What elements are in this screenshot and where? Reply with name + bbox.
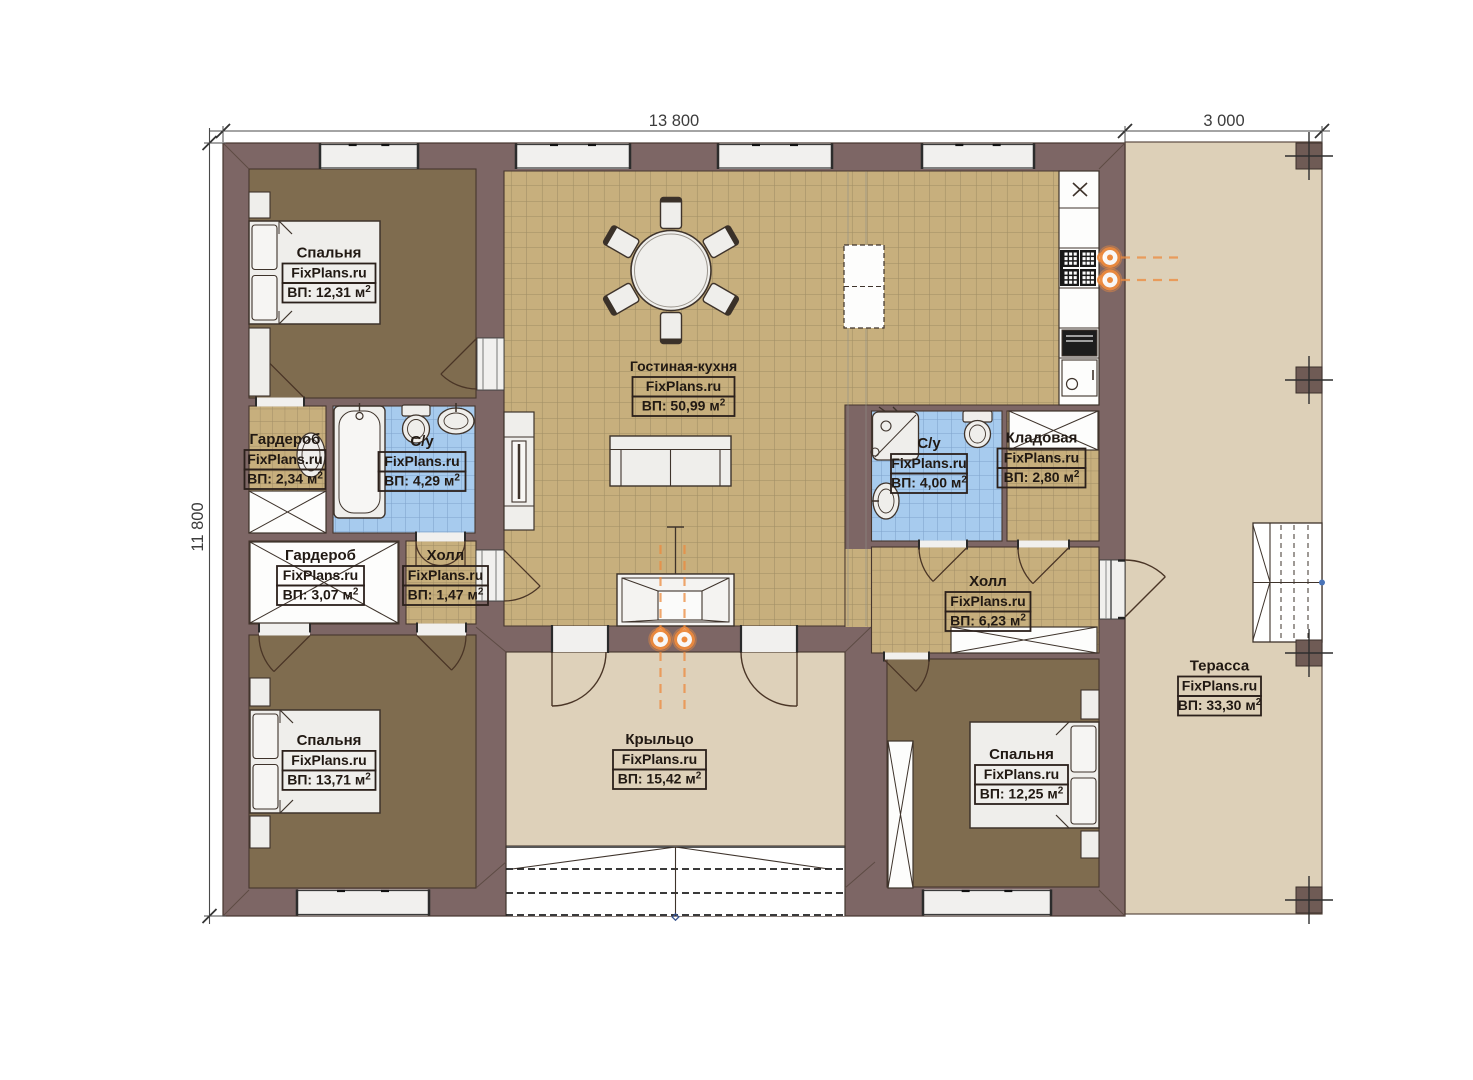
svg-text:FixPlans.ru: FixPlans.ru bbox=[1182, 678, 1257, 694]
svg-text:ВП: 4,29 м2: ВП: 4,29 м2 bbox=[384, 473, 460, 489]
svg-text:Гостиная-кухня: Гостиная-кухня bbox=[630, 358, 737, 374]
svg-text:Крыльцо: Крыльцо bbox=[625, 731, 693, 748]
svg-text:13 800: 13 800 bbox=[649, 112, 699, 130]
svg-text:FixPlans.ru: FixPlans.ru bbox=[950, 593, 1025, 609]
svg-text:FixPlans.ru: FixPlans.ru bbox=[1004, 450, 1079, 466]
svg-text:ВП: 6,23 м2: ВП: 6,23 м2 bbox=[950, 613, 1026, 629]
svg-text:Холл: Холл bbox=[969, 573, 1007, 590]
svg-text:Спальня: Спальня bbox=[989, 746, 1054, 763]
svg-text:Спальня: Спальня bbox=[297, 245, 362, 262]
svg-text:С/у: С/у bbox=[917, 435, 941, 452]
svg-text:ВП: 15,42 м2: ВП: 15,42 м2 bbox=[618, 771, 702, 787]
svg-text:FixPlans.ru: FixPlans.ru bbox=[984, 766, 1059, 782]
svg-text:FixPlans.ru: FixPlans.ru bbox=[622, 751, 697, 767]
svg-text:ВП: 33,30 м2: ВП: 33,30 м2 bbox=[1178, 697, 1262, 713]
svg-text:ВП: 1,47 м2: ВП: 1,47 м2 bbox=[408, 587, 484, 603]
svg-text:ВП: 2,80 м2: ВП: 2,80 м2 bbox=[1004, 469, 1080, 485]
svg-text:ВП: 13,71 м2: ВП: 13,71 м2 bbox=[287, 772, 371, 788]
svg-text:FixPlans.ru: FixPlans.ru bbox=[408, 567, 483, 583]
svg-text:FixPlans.ru: FixPlans.ru bbox=[291, 265, 366, 281]
svg-text:FixPlans.ru: FixPlans.ru bbox=[891, 455, 966, 471]
svg-text:3 000: 3 000 bbox=[1203, 112, 1244, 130]
svg-text:С/у: С/у bbox=[410, 433, 434, 450]
svg-text:ВП: 3,07 м2: ВП: 3,07 м2 bbox=[283, 587, 359, 603]
svg-text:FixPlans.ru: FixPlans.ru bbox=[384, 453, 459, 469]
svg-text:Гардероб: Гардероб bbox=[285, 547, 356, 564]
svg-text:ВП: 4,00 м2: ВП: 4,00 м2 bbox=[891, 475, 967, 491]
svg-text:Кладовая: Кладовая bbox=[1006, 430, 1078, 447]
svg-text:FixPlans.ru: FixPlans.ru bbox=[247, 451, 322, 467]
svg-text:Терасса: Терасса bbox=[1190, 658, 1250, 675]
svg-text:ВП: 2,34 м2: ВП: 2,34 м2 bbox=[247, 471, 323, 487]
svg-text:FixPlans.ru: FixPlans.ru bbox=[283, 567, 358, 583]
svg-text:11 800: 11 800 bbox=[189, 502, 207, 551]
svg-text:Гардероб: Гардероб bbox=[250, 431, 321, 448]
svg-text:ВП: 12,31 м2: ВП: 12,31 м2 bbox=[287, 284, 371, 300]
svg-text:ВП: 50,99 м2: ВП: 50,99 м2 bbox=[642, 398, 726, 414]
svg-text:Холл: Холл bbox=[427, 547, 465, 564]
svg-text:FixPlans.ru: FixPlans.ru bbox=[646, 378, 721, 394]
svg-text:Спальня: Спальня bbox=[297, 732, 362, 749]
svg-text:ВП: 12,25 м2: ВП: 12,25 м2 bbox=[980, 786, 1064, 802]
svg-text:FixPlans.ru: FixPlans.ru bbox=[291, 752, 366, 768]
